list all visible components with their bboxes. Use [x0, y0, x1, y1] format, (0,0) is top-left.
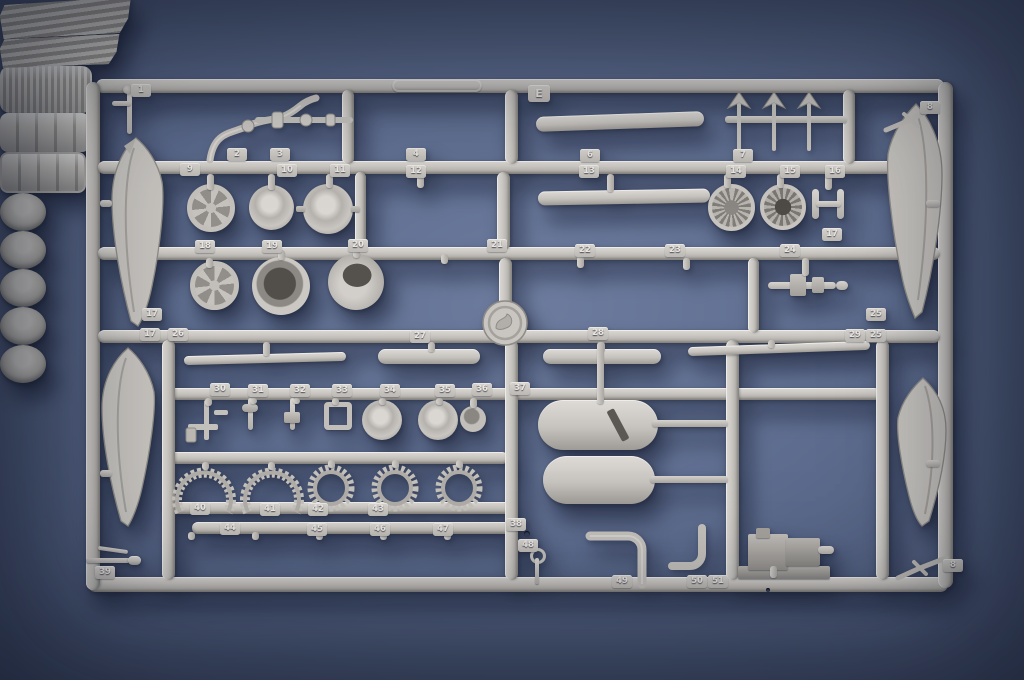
sprue-letter-tab: E [528, 85, 550, 102]
gate-stub [441, 254, 448, 264]
part-sprocket-wheel [187, 184, 235, 232]
part-number-tab-26: 26 [168, 328, 188, 341]
part-cap-disc-stub [351, 206, 360, 212]
part-number-tab-40: 40 [190, 502, 210, 515]
part-small-rod-b-block [284, 412, 300, 423]
part-long-blade-top [536, 111, 704, 132]
part-number-tab-42: 42 [308, 503, 328, 516]
brand-medallion-icon [482, 300, 528, 346]
gate-stub [392, 460, 399, 468]
part-number-tab-34: 34 [380, 384, 400, 397]
part-number-tab-17: 17 [142, 308, 162, 321]
gate-stub [597, 342, 604, 404]
gate-stub [428, 342, 435, 352]
part-number-tab-21: 21 [487, 239, 507, 252]
part-number-tab-19: 19 [262, 240, 282, 253]
gate-stub [250, 398, 257, 404]
part-wing-lower-left [98, 346, 162, 528]
part-small-ring [324, 402, 352, 430]
part-number-tab-28: 28 [588, 327, 608, 340]
sprue-frame: E 12346789101112131415161718192021222324… [0, 0, 1024, 680]
part-number-tab-25: 25 [866, 329, 886, 342]
part-thin-strip-right [688, 341, 870, 356]
part-number-tab-48: 48 [518, 539, 538, 552]
gate-stub [100, 200, 112, 207]
part-number-tab-39: 39 [95, 566, 115, 579]
part-saucer-disc [0, 193, 46, 231]
part-number-tab-38: 38 [506, 518, 526, 531]
part-long-blade-mid [538, 189, 710, 206]
gate-stub [205, 398, 212, 406]
part-gun-mount [736, 528, 834, 584]
part-number-tab-1: 1 [131, 84, 151, 97]
part-number-tab-12: 12 [406, 165, 426, 178]
part-saucer-disc [0, 231, 46, 269]
part-hub-disc [249, 185, 294, 230]
part-number-tab-47: 47 [433, 523, 453, 536]
part-saucer-disc [0, 307, 46, 345]
part-number-tab-25: 25 [866, 308, 886, 321]
part-number-tab-13: 13 [579, 165, 599, 178]
part-small-rod-a-cap [242, 404, 258, 412]
part-number-tab-43: 43 [368, 503, 388, 516]
gate-stub [652, 420, 728, 427]
part-number-tab-29: 29 [845, 329, 865, 342]
gate-stub [926, 460, 940, 467]
gate-stub [577, 256, 584, 268]
gate-stub [768, 340, 775, 348]
part-cap-disc-stub [296, 206, 305, 212]
part-number-tab-32: 32 [290, 384, 310, 397]
part-slat-stack-lower [0, 34, 120, 68]
part-number-tab-33: 33 [332, 384, 352, 397]
embossed-code-plate [392, 79, 482, 92]
part-saucer-disc [0, 269, 46, 307]
rail-vert-right-low [876, 340, 889, 580]
photo-background: E 12346789101112131415161718192021222324… [0, 0, 1024, 680]
part-turbine-ring [760, 184, 806, 230]
part-dart [761, 90, 787, 154]
part-number-tab-6: 6 [580, 149, 600, 162]
part-cap-disc [303, 184, 353, 234]
part-number-tab-46: 46 [370, 523, 390, 536]
part-number-tab-24: 24 [780, 244, 800, 257]
part-antenna-top-left-branch [112, 101, 131, 106]
part-number-tab-37: 37 [510, 382, 530, 395]
part-number-tab-23: 23 [665, 244, 685, 257]
rail-vert-center-low [505, 340, 518, 580]
gate-stub [268, 174, 275, 190]
gate-stub [683, 258, 690, 270]
gate-stub [202, 462, 209, 470]
part-number-tab-51: 51 [708, 575, 728, 588]
part-number-tab-27: 27 [410, 330, 430, 343]
gate-stub [188, 532, 195, 540]
gate-stub [770, 566, 777, 578]
gate-stub [650, 476, 728, 483]
part-nozzle-cone [328, 254, 384, 310]
part-dart [726, 90, 752, 154]
part-small-wheel-a [362, 400, 402, 440]
gate-stub [268, 462, 275, 470]
part-number-tab-50: 50 [687, 575, 707, 588]
gate-stub [206, 258, 213, 268]
gate-stub [802, 258, 809, 276]
part-number-tab-44: 44 [220, 522, 240, 535]
part-gun-assembly [768, 272, 848, 300]
part-number-tab-10: 10 [277, 164, 297, 177]
rail-vert-top-b [843, 90, 855, 164]
part-number-tab-14: 14 [726, 165, 746, 178]
part-antenna-bottom-right [896, 552, 948, 584]
part-ribbed-drum [0, 66, 92, 113]
part-small-disc [460, 406, 486, 432]
part-number-tab-49: 49 [612, 575, 632, 588]
locating-hole [524, 531, 530, 537]
part-pipe-assembly [256, 104, 352, 134]
part-number-tab-22: 22 [575, 244, 595, 257]
part-fuel-tank-lower [543, 456, 655, 504]
part-number-tab-41: 41 [260, 503, 280, 516]
gate-stub [470, 398, 477, 408]
rail-row1 [98, 161, 940, 174]
part-small-wheel-b [418, 400, 458, 440]
part-slat-stack-upper [0, 0, 133, 39]
gate-stub [607, 174, 614, 192]
part-number-tab-17: 17 [140, 328, 160, 341]
part-wing-lower-right [892, 376, 950, 528]
rail-row2 [98, 247, 940, 260]
part-number-tab-2: 2 [227, 148, 247, 161]
part-capped-cylinder [0, 152, 86, 193]
part-number-tab-7: 7 [733, 149, 753, 162]
part-number-tab-20: 20 [348, 239, 368, 252]
rail-vert-left [162, 340, 175, 580]
part-number-tab-8: 8 [920, 101, 940, 114]
part-number-tab-45: 45 [307, 523, 327, 536]
part-saucer-disc [0, 345, 46, 383]
gate-stub [436, 398, 443, 405]
gate-stub [332, 398, 339, 405]
gate-stub [252, 532, 259, 540]
part-exhaust-nozzle [252, 257, 310, 315]
gate-stub [379, 398, 386, 405]
rail-vert-top-center [505, 90, 518, 164]
gate-stub [100, 470, 112, 477]
part-banded-cylinder [0, 113, 90, 152]
part-number-tab-30: 30 [210, 383, 230, 396]
part-number-tab-35: 35 [435, 384, 455, 397]
gate-stub [293, 398, 300, 404]
part-turbine-fan [708, 184, 755, 231]
gate-stub [456, 460, 463, 468]
part-wing-upper-left [108, 136, 170, 328]
part-number-tab-18: 18 [195, 240, 215, 253]
part-number-tab-11: 11 [330, 164, 350, 177]
gate-stub [263, 342, 270, 356]
part-number-tab-9: 9 [180, 163, 200, 176]
locating-hole [766, 588, 770, 592]
part-number-tab-8: 8 [943, 559, 963, 572]
part-number-tab-15: 15 [780, 165, 800, 178]
part-number-tab-36: 36 [472, 383, 492, 396]
gate-stub [207, 174, 214, 190]
part-fuel-tank-upper [538, 400, 658, 450]
part-spoke-wheel [190, 261, 239, 310]
gate-stub [328, 460, 335, 468]
part-number-tab-16: 16 [825, 165, 845, 178]
part-toothed-ring [434, 462, 484, 514]
part-number-tab-31: 31 [248, 384, 268, 397]
part-number-tab-4: 4 [406, 148, 426, 161]
rail-vert-r2r3-b [748, 258, 759, 333]
part-number-tab-17: 17 [822, 228, 842, 241]
part-number-tab-3: 3 [270, 148, 290, 161]
gate-stub [926, 200, 940, 207]
part-dart [796, 90, 822, 154]
part-h-clamp [812, 189, 844, 219]
